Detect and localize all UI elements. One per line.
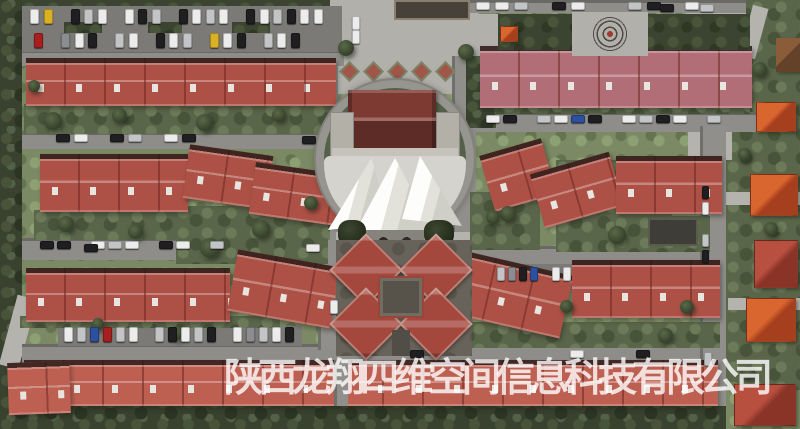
- car: [44, 9, 53, 24]
- car: [514, 2, 528, 10]
- car: [169, 33, 178, 48]
- car: [34, 33, 43, 48]
- car: [98, 9, 107, 24]
- entrance-building: [394, 0, 470, 20]
- tree: [486, 210, 500, 224]
- car: [300, 9, 309, 24]
- garden-hut: [500, 26, 518, 42]
- tree: [28, 80, 40, 92]
- car: [314, 9, 323, 24]
- car: [554, 115, 568, 123]
- car: [552, 2, 566, 10]
- car: [563, 267, 571, 281]
- car: [571, 2, 585, 10]
- car: [628, 2, 642, 10]
- tree: [58, 216, 74, 232]
- car: [233, 327, 242, 342]
- car: [156, 33, 165, 48]
- villa: [750, 174, 798, 216]
- villa: [746, 298, 796, 342]
- car: [673, 115, 687, 123]
- car: [155, 327, 164, 342]
- car: [125, 9, 134, 24]
- car: [64, 327, 73, 342]
- tree: [752, 62, 767, 77]
- car: [530, 267, 538, 281]
- tree: [252, 220, 270, 238]
- tree: [304, 196, 318, 210]
- compass-circle: [592, 16, 628, 52]
- car: [246, 9, 255, 24]
- car: [259, 327, 268, 342]
- clubhouse-roof: [348, 90, 436, 150]
- townhouse-row-north: [26, 58, 336, 106]
- car: [552, 267, 560, 281]
- car: [103, 327, 112, 342]
- watermark-text: 陕西龙翔四维空间信息科技有限公司: [224, 347, 768, 403]
- car: [700, 4, 714, 12]
- corner-house: [7, 361, 71, 415]
- car: [237, 33, 246, 48]
- car: [138, 9, 147, 24]
- car: [702, 234, 709, 247]
- car: [508, 267, 516, 281]
- villa: [776, 38, 800, 72]
- car: [246, 327, 255, 342]
- car: [129, 33, 138, 48]
- car: [71, 9, 80, 24]
- car: [129, 327, 138, 342]
- car: [152, 9, 161, 24]
- car: [588, 115, 602, 123]
- car: [88, 33, 97, 48]
- car: [207, 327, 216, 342]
- tree: [608, 226, 626, 244]
- car: [56, 134, 70, 142]
- aerial-photo: 陕西龙翔四维空间信息科技有限公司: [0, 0, 800, 429]
- car: [194, 327, 203, 342]
- car: [159, 241, 173, 249]
- car: [116, 327, 125, 342]
- car: [219, 9, 228, 24]
- villa: [754, 240, 798, 288]
- car: [210, 241, 224, 249]
- car: [210, 33, 219, 48]
- tree: [128, 224, 143, 239]
- car: [647, 2, 661, 10]
- tree: [658, 328, 673, 343]
- townhouse-row: [40, 154, 188, 212]
- car: [179, 9, 188, 24]
- car: [330, 300, 338, 314]
- car: [285, 327, 294, 342]
- car: [192, 9, 201, 24]
- car: [61, 33, 70, 48]
- car: [702, 186, 709, 199]
- car: [264, 33, 273, 48]
- garden-row1: [24, 104, 336, 134]
- garden-bottomright: [448, 322, 720, 348]
- car: [182, 134, 196, 142]
- car: [277, 33, 286, 48]
- townhouse-row: [26, 268, 230, 322]
- car: [352, 16, 360, 30]
- car: [702, 202, 709, 215]
- car: [164, 134, 178, 142]
- car: [656, 115, 670, 123]
- car: [352, 30, 360, 44]
- car: [476, 2, 490, 10]
- car: [503, 115, 517, 123]
- car: [176, 241, 190, 249]
- car: [57, 241, 71, 249]
- car: [306, 244, 320, 252]
- car: [639, 115, 653, 123]
- car: [702, 250, 709, 263]
- sports-court: [648, 218, 698, 246]
- car: [571, 115, 585, 123]
- car: [272, 327, 281, 342]
- car: [519, 267, 527, 281]
- car: [84, 9, 93, 24]
- car: [497, 267, 505, 281]
- car: [77, 327, 86, 342]
- tree: [458, 44, 474, 60]
- car: [287, 9, 296, 24]
- car: [30, 9, 39, 24]
- townhouse-row: [572, 260, 720, 318]
- car: [302, 136, 316, 144]
- car: [40, 241, 54, 249]
- car: [707, 115, 721, 123]
- car: [115, 33, 124, 48]
- tree: [44, 112, 62, 130]
- car: [110, 134, 124, 142]
- villa: [756, 102, 796, 132]
- car: [486, 115, 500, 123]
- car: [108, 241, 122, 249]
- car: [168, 327, 177, 342]
- car: [622, 115, 636, 123]
- car: [685, 2, 699, 10]
- parking-island: [64, 22, 102, 33]
- tree: [680, 300, 694, 314]
- car: [660, 4, 674, 12]
- tree: [738, 148, 751, 161]
- car: [183, 33, 192, 48]
- car: [223, 33, 232, 48]
- tree: [272, 108, 286, 122]
- tree: [112, 108, 127, 123]
- car: [128, 134, 142, 142]
- car: [537, 115, 551, 123]
- car: [291, 33, 300, 48]
- car: [495, 2, 509, 10]
- tree: [560, 300, 573, 313]
- car: [74, 134, 88, 142]
- car: [181, 327, 190, 342]
- kindergarten-court: [378, 276, 424, 318]
- car: [273, 9, 282, 24]
- tree: [764, 222, 778, 236]
- car: [84, 244, 98, 252]
- car: [206, 9, 215, 24]
- tree: [500, 206, 516, 222]
- car: [260, 9, 269, 24]
- car: [75, 33, 84, 48]
- car: [125, 241, 139, 249]
- tree: [196, 114, 213, 131]
- car: [90, 327, 99, 342]
